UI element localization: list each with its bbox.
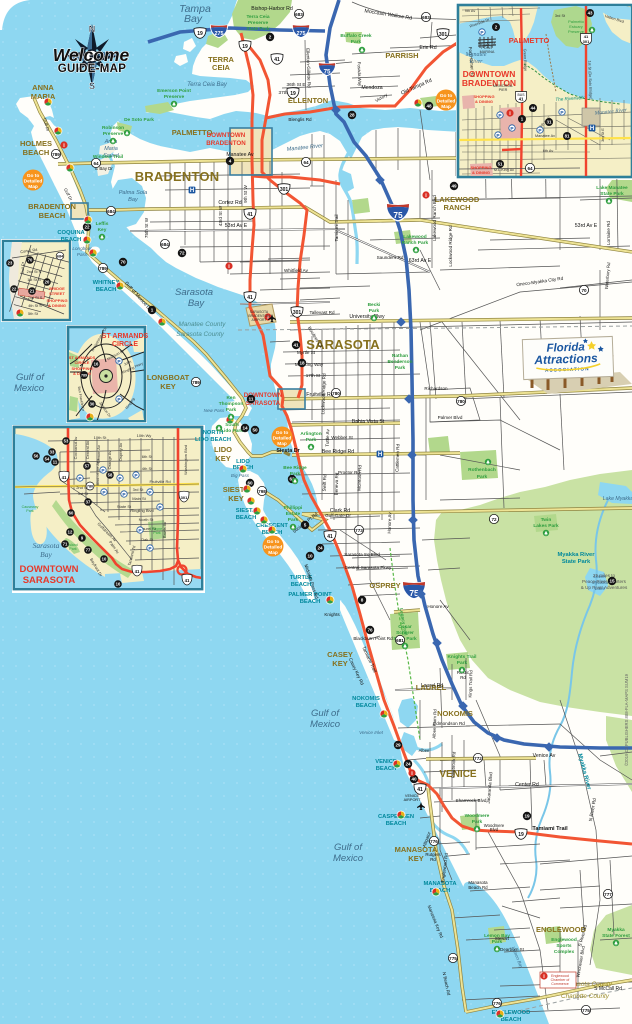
svg-text:Welcome: Welcome <box>53 45 130 65</box>
svg-text:19: 19 <box>197 31 203 37</box>
svg-text:Terra Ceia: Terra Ceia <box>246 14 269 20</box>
svg-text:64: 64 <box>527 166 533 171</box>
svg-text:Tamiami Trail: Tamiami Trail <box>334 214 339 241</box>
svg-text:41: 41 <box>293 343 299 348</box>
svg-text:798: 798 <box>258 489 266 494</box>
svg-text:Map: Map <box>268 550 278 556</box>
svg-text:Englewood: Englewood <box>551 937 577 943</box>
svg-text:GUIDE-MAP: GUIDE-MAP <box>58 63 127 75</box>
svg-text:15: 15 <box>609 579 615 584</box>
svg-text:16: 16 <box>94 362 99 367</box>
svg-text:Fruitville Rd: Fruitville Rd <box>149 479 170 484</box>
svg-text:Rd: Rd <box>460 675 466 680</box>
svg-text:6th Av: 6th Av <box>543 149 554 153</box>
svg-text:Ringling Blvd: Ringling Blvd <box>130 508 153 513</box>
svg-text:ST ARMANDS: ST ARMANDS <box>102 333 149 340</box>
svg-text:70: 70 <box>581 288 587 293</box>
svg-text:Charlotte County: Charlotte County <box>561 993 610 1000</box>
svg-text:301: 301 <box>181 495 188 500</box>
svg-text:BEACH: BEACH <box>236 515 257 521</box>
svg-text:9th St W: 9th St W <box>243 185 248 203</box>
svg-text:30: 30 <box>90 402 95 407</box>
svg-text:Terra Ceia Bay: Terra Ceia Bay <box>187 82 228 88</box>
svg-text:Albee: Albee <box>419 748 430 753</box>
svg-text:HOLMES: HOLMES <box>20 139 52 148</box>
svg-text:24: 24 <box>317 546 323 551</box>
svg-text:LONGBOAT: LONGBOAT <box>147 373 190 382</box>
svg-text:51: 51 <box>498 162 503 167</box>
svg-text:Erie Rd: Erie Rd <box>419 45 436 51</box>
svg-text:301: 301 <box>293 310 302 316</box>
svg-text:Myrtle St: Myrtle St <box>297 350 316 355</box>
svg-text:RANCH: RANCH <box>443 203 470 212</box>
svg-text:Gulf of: Gulf of <box>311 708 340 719</box>
svg-text:Longboat: Longboat <box>72 246 92 251</box>
svg-text:New Pass: New Pass <box>204 408 225 413</box>
svg-text:31: 31 <box>547 120 552 125</box>
svg-text:KEY: KEY <box>408 854 423 863</box>
svg-text:Maria: Maria <box>104 146 117 152</box>
svg-text:789: 789 <box>52 152 60 157</box>
svg-text:Lakewood Ranch Blvd: Lakewood Ranch Blvd <box>432 195 437 241</box>
svg-text:Tallevast Rd: Tallevast Rd <box>309 310 334 315</box>
svg-text:2nd St N: 2nd St N <box>27 270 42 274</box>
svg-text:37: 37 <box>86 500 91 505</box>
svg-text:6th St: 6th St <box>142 454 153 459</box>
svg-text:56: 56 <box>34 454 39 459</box>
svg-text:MARINA: MARINA <box>480 50 495 54</box>
svg-text:Detailed: Detailed <box>437 99 456 105</box>
svg-text:Green Bridge: Green Bridge <box>523 49 528 72</box>
svg-text:1st St: 1st St <box>78 491 89 496</box>
svg-text:Buffalo Creek: Buffalo Creek <box>340 33 372 39</box>
svg-text:BEACH: BEACH <box>386 821 407 827</box>
svg-text:Pass: Pass <box>77 252 88 257</box>
svg-text:BEACH: BEACH <box>300 599 321 605</box>
svg-text:4: 4 <box>229 159 232 164</box>
svg-text:University Plwy: University Plwy <box>349 314 385 320</box>
svg-text:Ken: Ken <box>226 395 235 401</box>
svg-text:58: 58 <box>108 473 113 478</box>
svg-text:64: 64 <box>93 161 99 166</box>
svg-text:Rawls Av: Rawls Av <box>162 522 167 538</box>
svg-text:LIDO BEACH: LIDO BEACH <box>195 437 231 443</box>
svg-text:AIRPORT: AIRPORT <box>251 318 266 322</box>
svg-text:54: 54 <box>45 457 50 462</box>
svg-text:Stewart: Stewart <box>495 936 510 941</box>
svg-text:Osprey Av: Osprey Av <box>118 443 123 461</box>
svg-text:Park: Park <box>477 474 488 480</box>
svg-text:Central Av: Central Av <box>85 441 90 459</box>
svg-text:Go to: Go to <box>440 93 453 99</box>
svg-text:5: 5 <box>304 523 307 528</box>
svg-text:State Park: State Park <box>246 26 270 32</box>
svg-text:Lido Park: Lido Park <box>221 428 243 434</box>
svg-text:29: 29 <box>395 743 401 748</box>
svg-text:301: 301 <box>439 32 448 38</box>
svg-text:60: 60 <box>69 511 74 516</box>
svg-text:Webber St: Webber St <box>331 435 353 440</box>
svg-text:1st St N: 1st St N <box>27 278 41 282</box>
svg-text:Manatee Av: Manatee Av <box>535 134 555 138</box>
svg-text:LIDO: LIDO <box>214 445 232 454</box>
svg-text:41: 41 <box>327 534 333 540</box>
svg-text:28: 28 <box>349 113 355 118</box>
svg-text:Commerce: Commerce <box>551 982 569 986</box>
svg-text:75: 75 <box>393 210 403 220</box>
svg-text:CEIA: CEIA <box>212 63 231 72</box>
svg-text:Map: Map <box>441 104 451 110</box>
svg-text:Bay: Bay <box>40 550 52 559</box>
svg-text:19: 19 <box>242 44 248 50</box>
svg-text:Preserve: Preserve <box>248 20 269 26</box>
svg-text:Honore Av: Honore Av <box>387 511 393 533</box>
svg-text:Siesta Dr: Siesta Dr <box>276 448 300 454</box>
svg-text:Thompson: Thompson <box>219 401 244 407</box>
svg-text:40: 40 <box>411 777 417 782</box>
svg-text:Gulf of: Gulf of <box>16 372 45 383</box>
svg-text:41: 41 <box>274 57 280 63</box>
svg-text:Richardson: Richardson <box>424 386 448 391</box>
svg-text:Blvd: Blvd <box>490 827 499 832</box>
svg-text:S: S <box>89 81 95 91</box>
svg-text:STREET: STREET <box>49 291 65 296</box>
svg-text:776: 776 <box>493 1001 501 1006</box>
svg-text:Cocoanut Av: Cocoanut Av <box>73 437 78 460</box>
svg-text:Park: Park <box>472 819 483 825</box>
svg-text:Peace River Charters: Peace River Charters <box>582 579 627 584</box>
svg-text:24: 24 <box>405 762 411 767</box>
svg-text:©2019 CJ PUBLISHERS 888-FLA-M: ©2019 CJ PUBLISHERS 888-FLA-MAPS SUM19 <box>624 673 629 766</box>
svg-text:Mexico: Mexico <box>14 383 44 394</box>
svg-text:75th St W: 75th St W <box>144 217 149 238</box>
svg-text:43: 43 <box>588 11 593 16</box>
svg-text:Map: Map <box>28 184 38 190</box>
svg-text:71: 71 <box>63 542 68 547</box>
svg-text:Central Sarasota Pkwy: Central Sarasota Pkwy <box>345 565 392 570</box>
svg-text:DOWNTOWN: DOWNTOWN <box>20 564 79 575</box>
svg-text:Go to: Go to <box>267 539 280 545</box>
svg-text:10: 10 <box>102 557 107 562</box>
svg-text:Gulf Dr: Gulf Dr <box>21 261 25 274</box>
svg-text:3rd St E: 3rd St E <box>601 128 605 142</box>
svg-text:Tuttle Av: Tuttle Av <box>325 428 331 446</box>
svg-text:PALMETTO: PALMETTO <box>509 36 550 45</box>
svg-text:Go to: Go to <box>276 430 289 436</box>
svg-text:77: 77 <box>86 548 91 553</box>
svg-text:Lake Manatee: Lake Manatee <box>596 185 628 191</box>
svg-text:Edmondson Rd: Edmondson Rd <box>433 721 465 726</box>
svg-text:Washington Blvd: Washington Blvd <box>183 445 188 475</box>
svg-text:COQUINA: COQUINA <box>57 230 85 236</box>
svg-text:MARIA: MARIA <box>31 92 56 101</box>
svg-text:683: 683 <box>422 15 430 20</box>
svg-text:70: 70 <box>28 258 33 263</box>
svg-text:Sarasota County: Sarasota County <box>176 331 224 338</box>
svg-text:Park: Park <box>69 547 77 551</box>
svg-text:64: 64 <box>303 160 309 165</box>
svg-text:Cattlemen Rd: Cattlemen Rd <box>395 443 401 472</box>
svg-text:Phillippi: Phillippi <box>284 505 303 511</box>
svg-text:50: 50 <box>252 428 258 433</box>
svg-text:BEACH: BEACH <box>61 237 82 243</box>
svg-text:Bee Ridge: Bee Ridge <box>283 465 307 471</box>
svg-text:Park: Park <box>26 509 34 513</box>
svg-text:M.L.King Av: M.L.King Av <box>494 168 514 172</box>
svg-text:17th St: 17th St <box>306 373 321 378</box>
svg-text:775: 775 <box>582 1008 590 1013</box>
svg-text:775: 775 <box>449 956 457 961</box>
svg-text:Myakka River: Myakka River <box>557 552 595 558</box>
svg-text:41: 41 <box>247 295 253 301</box>
svg-text:22: 22 <box>84 225 90 230</box>
svg-text:4th St S: 4th St S <box>28 304 42 308</box>
svg-text:Estate: Estate <box>286 511 301 517</box>
svg-text:Tamiami Trail: Tamiami Trail <box>532 826 568 832</box>
svg-text:5th St: 5th St <box>28 312 39 316</box>
svg-text:Bahia Vista St: Bahia Vista St <box>352 419 385 425</box>
svg-text:Mexico: Mexico <box>310 719 340 730</box>
svg-text:Kings Trail Rd: Kings Trail Rd <box>468 670 474 698</box>
svg-text:BEACH: BEACH <box>356 703 377 709</box>
svg-text:N: N <box>89 24 96 34</box>
svg-text:Detailed: Detailed <box>264 545 283 551</box>
svg-text:23: 23 <box>8 261 13 266</box>
svg-text:Swift Rd: Swift Rd <box>322 474 328 492</box>
svg-text:Lockwood Ridge Rd: Lockwood Ridge Rd <box>448 225 453 267</box>
svg-text:VENICE: VENICE <box>439 769 477 780</box>
svg-text:19: 19 <box>524 814 530 819</box>
svg-text:Blvd of the Arts: Blvd of the Arts <box>95 459 100 486</box>
svg-text:Map: Map <box>277 441 287 447</box>
svg-text:Lorraine Rd: Lorraine Rd <box>606 221 611 245</box>
svg-text:Lakewood: Lakewood <box>403 234 427 240</box>
svg-text:70: 70 <box>120 260 126 265</box>
svg-text:10th St: 10th St <box>94 435 108 440</box>
svg-text:8: 8 <box>361 598 364 603</box>
svg-text:684: 684 <box>107 209 115 214</box>
svg-text:72: 72 <box>179 251 185 256</box>
svg-text:2: 2 <box>269 35 272 40</box>
svg-text:20: 20 <box>45 280 50 285</box>
svg-text:CASPERSEN: CASPERSEN <box>378 814 414 820</box>
svg-text:41: 41 <box>247 212 253 218</box>
svg-text:Preserve: Preserve <box>103 131 124 137</box>
svg-text:KEY: KEY <box>215 454 230 463</box>
svg-text:Saunders Rd: Saunders Rd <box>377 255 404 260</box>
svg-text:53rd Av E: 53rd Av E <box>225 223 248 229</box>
svg-text:BEACH: BEACH <box>39 211 66 220</box>
svg-text:10: 10 <box>307 554 313 559</box>
svg-text:Sarasota: Sarasota <box>175 287 213 298</box>
svg-text:CIRCLE: CIRCLE <box>75 360 90 365</box>
svg-text:684: 684 <box>57 255 64 259</box>
svg-text:19: 19 <box>518 832 524 838</box>
svg-text:789: 789 <box>81 374 87 378</box>
svg-text:Knights: Knights <box>324 612 340 617</box>
svg-text:780: 780 <box>332 391 340 396</box>
svg-text:57: 57 <box>85 464 90 469</box>
svg-text:Myakka: Myakka <box>607 927 625 933</box>
svg-text:North St: North St <box>139 517 155 522</box>
svg-text:BRADENTON: BRADENTON <box>135 169 220 184</box>
svg-text:22: 22 <box>12 287 17 292</box>
svg-text:684: 684 <box>161 242 169 247</box>
svg-text:Blackburn Point Rd: Blackburn Point Rd <box>353 636 393 641</box>
svg-text:Park: Park <box>457 660 468 666</box>
svg-text:BRADENTON: BRADENTON <box>206 140 246 147</box>
svg-text:Blenglis Rd: Blenglis Rd <box>288 117 312 122</box>
svg-text:Dearborn St: Dearborn St <box>500 947 524 952</box>
svg-text:PARRISH: PARRISH <box>385 51 418 60</box>
svg-text:3rd St: 3rd St <box>133 487 145 492</box>
svg-text:789: 789 <box>192 380 200 385</box>
svg-text:681: 681 <box>396 638 404 643</box>
svg-text:36th St E: 36th St E <box>287 82 306 87</box>
svg-text:NOKOMIS: NOKOMIS <box>352 696 380 702</box>
svg-text:Park: Park <box>395 365 406 371</box>
svg-text:9th Av: 9th Av <box>465 9 476 13</box>
svg-text:21: 21 <box>30 289 35 294</box>
svg-text:Whitfield Av: Whitfield Av <box>284 268 309 273</box>
svg-text:780: 780 <box>87 485 93 489</box>
svg-text:& DINING: & DINING <box>472 170 490 175</box>
svg-text:Bishop-Harbor Rd: Bishop-Harbor Rd <box>251 6 293 12</box>
svg-text:Orange Av: Orange Av <box>107 451 112 470</box>
svg-text:Bay: Bay <box>128 197 139 203</box>
svg-text:48: 48 <box>426 104 432 109</box>
svg-text:Palma Sola: Palma Sola <box>119 190 148 196</box>
svg-text:Bee Ridge Rd: Bee Ridge Rd <box>322 449 354 455</box>
svg-text:Leffis: Leffis <box>96 221 109 227</box>
svg-text:PIER: PIER <box>499 88 508 92</box>
svg-text:Center Rd: Center Rd <box>515 782 539 788</box>
svg-text:53rd Av E: 53rd Av E <box>575 223 598 229</box>
svg-text:Park: Park <box>351 39 362 45</box>
svg-text:State Forest: State Forest <box>602 933 630 939</box>
svg-text:Big Pass: Big Pass <box>231 473 250 478</box>
svg-text:KEY: KEY <box>332 659 347 668</box>
svg-text:Gulf Gate Dr: Gulf Gate Dr <box>325 513 351 518</box>
svg-text:18: 18 <box>299 361 305 366</box>
svg-text:Woodmere: Woodmere <box>465 813 490 819</box>
svg-text:773: 773 <box>355 528 363 533</box>
svg-text:Park: Park <box>288 517 299 523</box>
svg-text:43rd St W: 43rd St W <box>218 205 223 226</box>
svg-text:Key: Key <box>98 227 107 233</box>
svg-text:41: 41 <box>62 475 67 480</box>
svg-text:10th Wy: 10th Wy <box>137 433 152 438</box>
svg-text:Park: Park <box>306 437 317 443</box>
svg-text:Palmer Blvd: Palmer Blvd <box>438 415 463 420</box>
svg-text:2nd St S: 2nd St S <box>28 296 43 300</box>
svg-text:776: 776 <box>430 839 438 844</box>
svg-text:772: 772 <box>474 756 482 761</box>
svg-text:OSPREY: OSPREY <box>369 581 400 590</box>
svg-text:SARASOTA: SARASOTA <box>23 575 76 586</box>
svg-text:Sports: Sports <box>556 943 572 949</box>
svg-text:275: 275 <box>297 31 306 37</box>
svg-text:S McCall Rd: S McCall Rd <box>594 986 622 992</box>
svg-text:Oak St: Oak St <box>141 537 154 542</box>
svg-text:& DINING: & DINING <box>475 99 493 104</box>
svg-text:Bay: Bay <box>188 298 206 309</box>
svg-text:Cortez Rd: Cortez Rd <box>218 200 241 206</box>
svg-text:683: 683 <box>295 12 303 17</box>
svg-text:Venice Av: Venice Av <box>533 753 556 759</box>
svg-text:Robinson: Robinson <box>102 125 124 131</box>
svg-text:ANNA: ANNA <box>32 83 54 92</box>
svg-text:16: 16 <box>116 582 121 587</box>
svg-text:Detailed: Detailed <box>24 179 43 185</box>
svg-text:BEACH: BEACH <box>291 582 312 588</box>
svg-text:75: 75 <box>324 68 331 75</box>
svg-text:19: 19 <box>290 91 296 97</box>
svg-text:NOKOMIS: NOKOMIS <box>437 709 473 718</box>
svg-text:Rothenbach: Rothenbach <box>468 467 496 473</box>
svg-text:Honore Av: Honore Av <box>427 604 449 609</box>
svg-text:Beneva Rd: Beneva Rd <box>334 472 340 495</box>
svg-text:Gulf of: Gulf of <box>334 842 363 853</box>
svg-text:41: 41 <box>417 787 423 793</box>
svg-text:Ranch Park: Ranch Park <box>402 240 429 246</box>
svg-text:ENGLEWOOD: ENGLEWOOD <box>536 925 587 934</box>
svg-text:BEACH: BEACH <box>96 287 117 293</box>
svg-text:275: 275 <box>215 31 224 37</box>
svg-text:& Up River Adventures: & Up River Adventures <box>581 585 628 590</box>
svg-text:WHITNEY: WHITNEY <box>93 280 120 286</box>
svg-text:Complex: Complex <box>554 949 575 955</box>
svg-text:789: 789 <box>99 266 107 271</box>
svg-text:Lakes Park: Lakes Park <box>533 523 559 529</box>
svg-text:41: 41 <box>185 578 190 583</box>
svg-text:Twin: Twin <box>541 517 552 523</box>
svg-text:DOWNTOWN: DOWNTOWN <box>207 132 246 139</box>
svg-text:1: 1 <box>151 308 154 313</box>
svg-text:33: 33 <box>50 450 55 455</box>
svg-text:Fosada Way: Fosada Way <box>357 62 363 87</box>
svg-text:44: 44 <box>531 106 536 111</box>
svg-text:Venice Inlet: Venice Inlet <box>359 730 384 735</box>
svg-text:76: 76 <box>367 628 373 633</box>
svg-text:Park: Park <box>226 407 237 413</box>
svg-text:Benderson: Benderson <box>387 359 412 365</box>
svg-text:Bay: Bay <box>184 13 203 25</box>
svg-text:Beach Rd: Beach Rd <box>468 885 488 890</box>
svg-text:Laurel Rd: Laurel Rd <box>421 683 444 689</box>
svg-text:Attractions: Attractions <box>533 351 598 367</box>
svg-text:Main St: Main St <box>132 496 146 501</box>
svg-text:Nathan: Nathan <box>392 353 408 359</box>
svg-text:301: 301 <box>583 39 590 44</box>
svg-text:Albee Farm Rd: Albee Farm Rd <box>431 709 437 739</box>
svg-text:State Park: State Park <box>600 191 624 197</box>
svg-text:KEY: KEY <box>228 494 243 503</box>
svg-text:De Soto Park: De Soto Park <box>124 117 154 123</box>
svg-text:Preserve: Preserve <box>164 94 185 100</box>
svg-text:KEY: KEY <box>160 382 175 391</box>
svg-text:41: 41 <box>519 97 524 102</box>
svg-text:53: 53 <box>64 439 69 444</box>
svg-text:BEACH: BEACH <box>376 766 397 772</box>
svg-text:Detailed: Detailed <box>273 436 292 442</box>
svg-text:BEACH: BEACH <box>501 1017 522 1023</box>
svg-text:CIRCLE: CIRCLE <box>112 341 138 348</box>
svg-text:81: 81 <box>565 134 570 139</box>
svg-text:Knights Trail: Knights Trail <box>447 654 476 660</box>
svg-text:72: 72 <box>491 517 497 522</box>
svg-text:41: 41 <box>135 569 140 574</box>
